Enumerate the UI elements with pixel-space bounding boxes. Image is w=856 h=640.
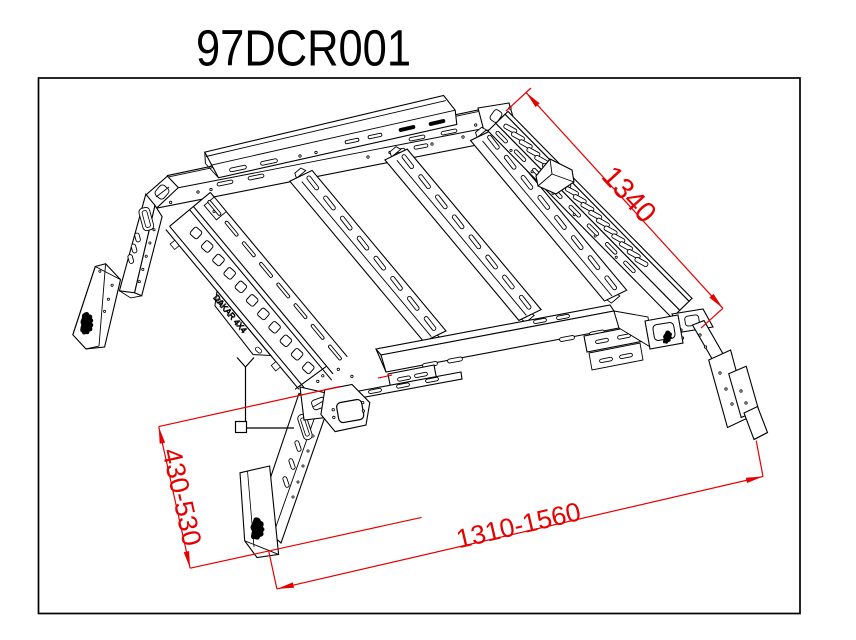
svg-text:97DCR001: 97DCR001 [196,20,411,77]
